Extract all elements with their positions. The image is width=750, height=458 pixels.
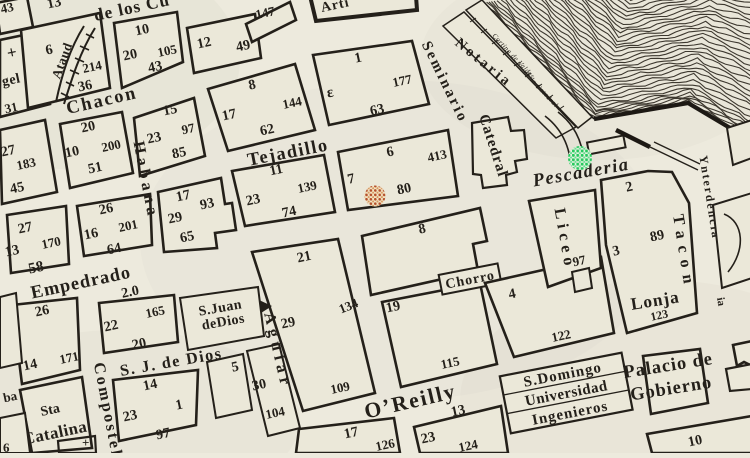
svg-text:126: 126 [374, 435, 397, 453]
svg-text:6: 6 [3, 440, 10, 453]
svg-text:124: 124 [457, 436, 480, 453]
